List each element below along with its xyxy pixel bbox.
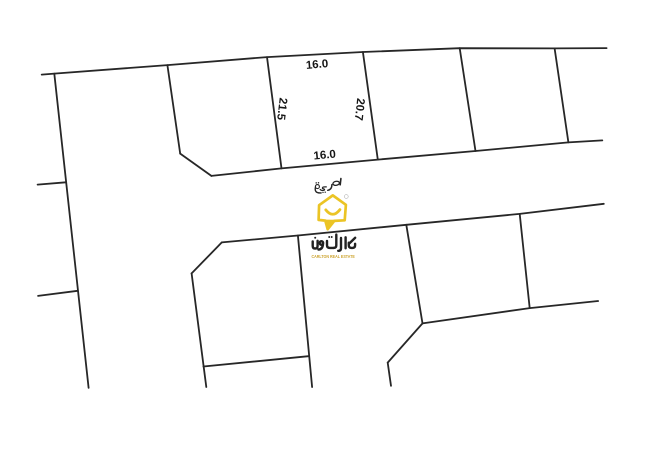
svg-text:CARLTON REAL ESTATE: CARLTON REAL ESTATE bbox=[312, 254, 355, 259]
svg-text:20.7: 20.7 bbox=[352, 98, 366, 122]
svg-text:16.0: 16.0 bbox=[313, 149, 336, 163]
svg-text:16.0: 16.0 bbox=[305, 58, 328, 72]
